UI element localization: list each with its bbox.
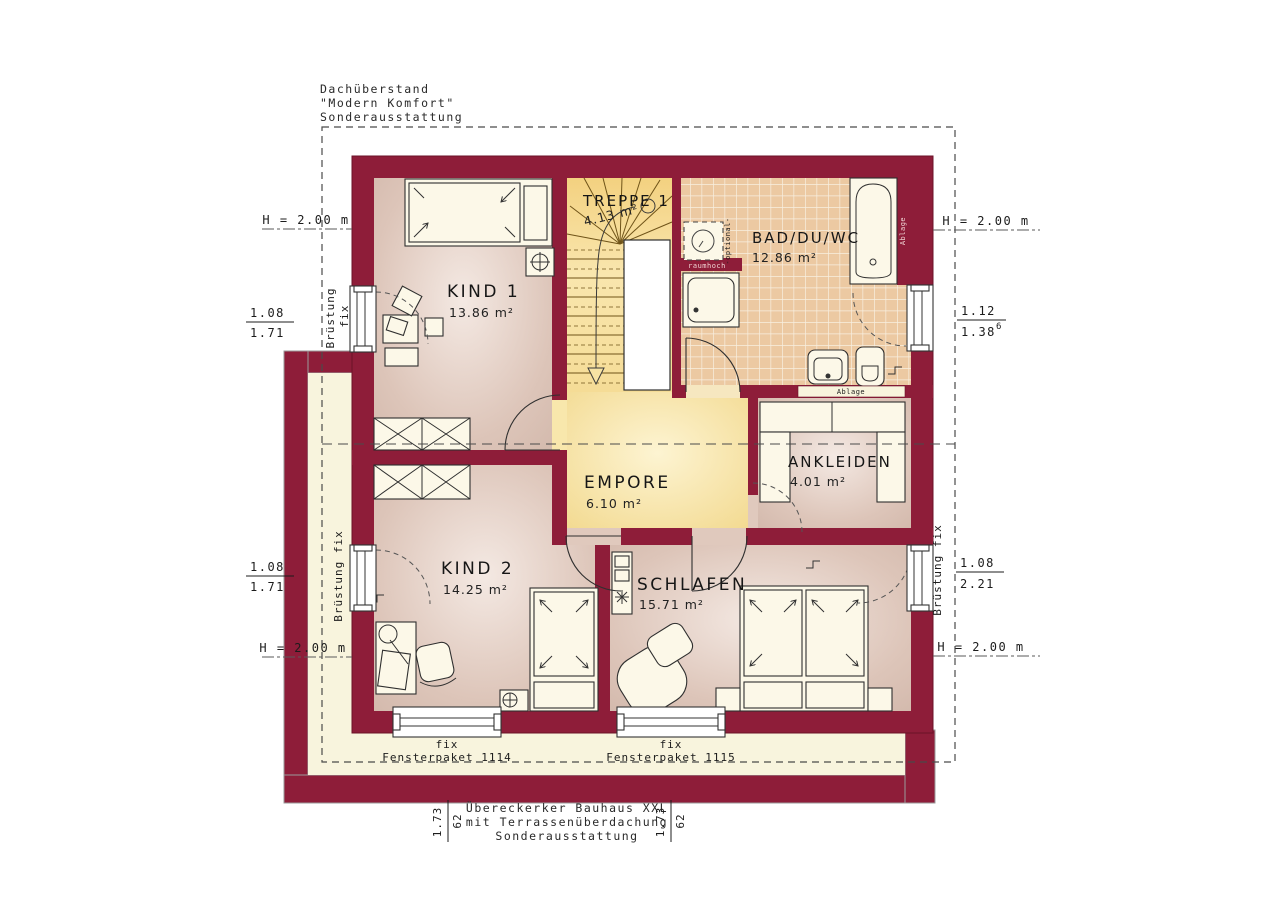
- floor-plan-page: TREPPE 1 4.13 m² BAD/DU/WC 12.86 m² KIND…: [0, 0, 1280, 906]
- fensterpaket1-name: Fensterpaket 1114: [382, 751, 512, 764]
- height-label-left-top: H = 2.00 m: [262, 213, 349, 227]
- window-dim-right-top-w: 1.12: [961, 304, 996, 318]
- erker-note-line1: Übereckerker Bauhaus XXL: [466, 799, 668, 815]
- window-dim-right-top-h: 1.38: [961, 325, 996, 339]
- window-dim-left-top-w: 1.08: [250, 306, 285, 320]
- ankleiden-area: 4.01 m²: [790, 474, 846, 489]
- kind1-door-opening: [552, 400, 567, 450]
- schlafen-area: 15.71 m²: [639, 597, 704, 612]
- floor-plan-drawing: TREPPE 1 4.13 m² BAD/DU/WC 12.86 m² KIND…: [0, 0, 1280, 906]
- kind1-label: KIND 1: [447, 282, 520, 302]
- corner-dim-1a: 1.73: [431, 807, 444, 838]
- corner-dim-2a: 1.73: [654, 807, 667, 838]
- fensterpaket2-name: Fensterpaket 1115: [606, 751, 736, 764]
- window-bottom-2: [617, 707, 725, 737]
- window-bottom-1: [393, 707, 501, 737]
- bad-door-opening: [686, 385, 740, 398]
- roof-note-line3: Sonderausstattung: [320, 110, 463, 124]
- washing-machine-optional: [684, 222, 723, 260]
- window-schlafen-right: [907, 545, 933, 611]
- ankleiden-door-opening: [748, 495, 758, 528]
- bruestung-label-left-top: Brüstung: [324, 288, 337, 349]
- height-label-left-bottom: H = 2.00 m: [259, 641, 346, 655]
- kind2-area: 14.25 m²: [443, 582, 508, 597]
- bruestung-fix-label-left-bottom: Brüstung fix: [332, 530, 345, 621]
- window-dim-left-top-h: 1.71: [250, 326, 285, 340]
- schlafen-label: SCHLAFEN: [637, 575, 747, 595]
- window-dim-left-bottom-w: 1.08: [250, 560, 285, 574]
- window-dim-right-top-sup: 6: [996, 322, 1001, 332]
- optional-label: -optional-: [724, 217, 732, 264]
- window-bad-right: [907, 285, 933, 351]
- ablage-label-shelf: Ablage: [837, 388, 865, 396]
- schlafen-door-opening: [692, 528, 746, 545]
- bruestung-fix-label-right-bottom: Brüstung fix: [931, 524, 944, 615]
- window-kind1-left: [350, 286, 376, 352]
- raumhoch-label: raumhoch: [688, 262, 726, 270]
- erker-note-line3: Sonderausstattung: [495, 829, 638, 843]
- ankleiden-label: ANKLEIDEN: [788, 453, 892, 471]
- terrace-walkway-left: [308, 373, 352, 733]
- corner-dim-2b: 62: [674, 813, 687, 828]
- corner-dim-1b: 62: [451, 813, 464, 828]
- fensterpaket2-fix: fix: [660, 738, 683, 751]
- kind2-label: KIND 2: [441, 559, 514, 579]
- stairwell-opening: [624, 240, 670, 390]
- roof-note-line1: Dachüberstand: [320, 82, 430, 96]
- kind1-area: 13.86 m²: [449, 305, 514, 320]
- empore-label: EMPORE: [584, 473, 671, 493]
- window-dim-right-bottom-h: 2.21: [960, 577, 995, 591]
- ablage-label-tub: Ablage: [899, 217, 907, 245]
- window-dim-left-bottom-h: 1.71: [250, 580, 285, 594]
- fix-label-left-top: fix: [338, 305, 351, 328]
- empore-area: 6.10 m²: [586, 496, 642, 511]
- roof-note-line2: "Modern Komfort": [320, 96, 455, 110]
- bad-area: 12.86 m²: [752, 250, 817, 265]
- height-label-right-top: H = 2.00 m: [942, 214, 1029, 228]
- kind2-chair: [415, 641, 456, 683]
- erker-note-line2: mit Terrassenüberdachung: [466, 815, 668, 829]
- height-label-right-bottom: H = 2.00 m: [937, 640, 1024, 654]
- bad-label: BAD/DU/WC: [752, 229, 860, 247]
- window-dim-right-bottom-w: 1.08: [960, 556, 995, 570]
- fensterpaket1-fix: fix: [436, 738, 459, 751]
- window-kind2-left: [350, 545, 376, 611]
